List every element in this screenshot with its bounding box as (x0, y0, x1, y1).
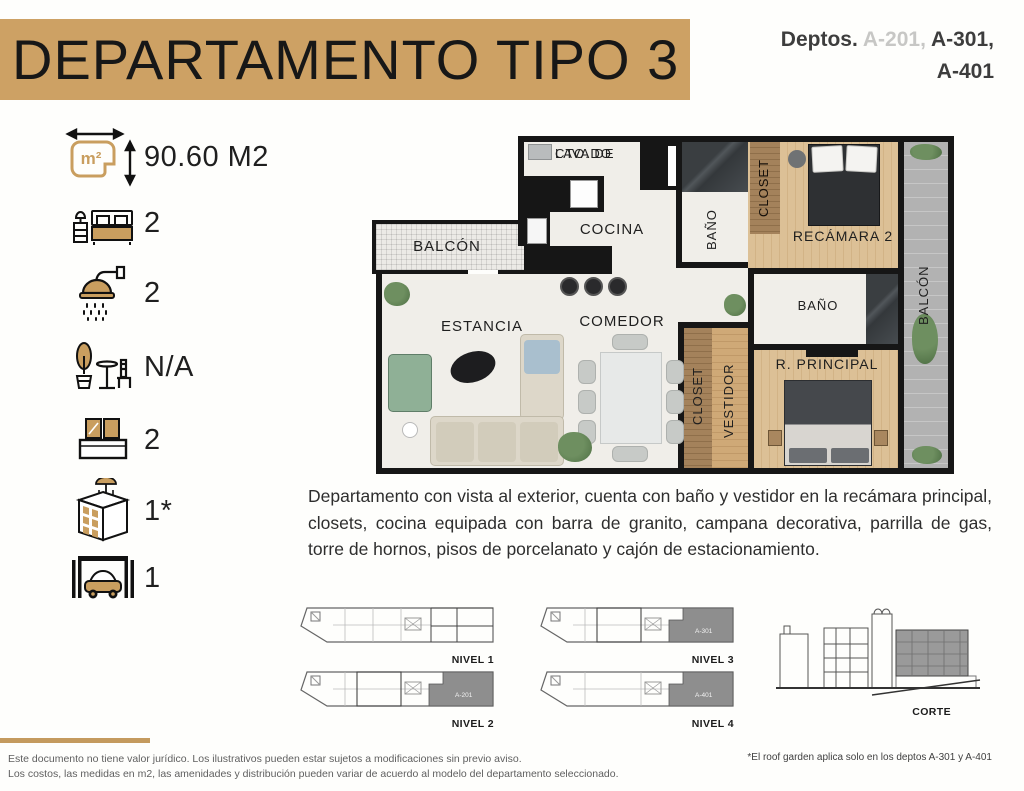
spec-row-bedrooms: 2 (62, 198, 161, 248)
room-label-dining: COMEDOR (570, 313, 674, 330)
room-label-bathroom2: BAÑO (778, 298, 858, 313)
stool (608, 277, 627, 296)
brochure-page: DEPARTAMENTO TIPO 3 Deptos. A-201, A-301… (0, 0, 1024, 791)
spec-row-area: m² 90.60 M2 (62, 124, 269, 190)
terrace-icon (62, 340, 144, 394)
roof-garden-icon (62, 478, 144, 544)
thumb-nivel-1: NIVEL 1 (293, 602, 500, 666)
spec-area-value: 90.60 M2 (144, 141, 269, 174)
wall (376, 274, 382, 472)
nivel2-unit: A-201 (455, 692, 473, 699)
wall (948, 136, 954, 474)
spec-row-bathrooms: 2 (62, 262, 161, 324)
room-label-living: ESTANCIA (430, 318, 534, 335)
kitchen-stove (527, 218, 547, 244)
spec-row-terrace: N/A (62, 338, 194, 396)
washer (528, 144, 552, 160)
area-icon: m² (62, 126, 144, 188)
spec-parking-value: 1 (144, 562, 161, 595)
master-pillow (831, 448, 869, 463)
spec-bathrooms-value: 2 (144, 277, 161, 310)
room-label-bathroom1: BAÑO (704, 200, 719, 260)
bathroom-icon (62, 264, 144, 322)
sofa-cushion (520, 422, 558, 462)
plant (558, 432, 592, 462)
wall (682, 262, 752, 268)
nightstand (874, 430, 888, 446)
spec-roof-garden-value: 1* (144, 495, 172, 528)
stool (560, 277, 579, 296)
room-label-kitchen: COCINA (562, 221, 662, 238)
dining-chair (666, 360, 684, 384)
nivel4-label: NIVEL 4 (533, 718, 740, 730)
dining-chair (612, 446, 648, 462)
dining-chair (666, 390, 684, 414)
spec-row-roof-garden: 1* (62, 474, 172, 548)
roof-garden-note: *El roof garden aplica solo en los depto… (747, 752, 992, 763)
bath1-shower (682, 142, 748, 192)
nivel3-plan: A-301 (533, 602, 740, 648)
thumb-nivel-3: A-301 NIVEL 3 (533, 602, 740, 666)
spec-row-balconies: 2 (62, 412, 161, 468)
bath2-shower (866, 274, 898, 344)
nivel1-plan (293, 602, 500, 648)
sofa-cushion (478, 422, 516, 462)
bedroom-icon (62, 199, 144, 247)
plant (384, 282, 410, 306)
blue-throw (524, 340, 560, 374)
plant (910, 144, 942, 160)
nivel3-unit: A-301 (695, 628, 713, 635)
side-table (402, 422, 418, 438)
spec-balconies-value: 2 (144, 424, 161, 457)
footer-accent-bar (0, 738, 150, 743)
title-banner: DEPARTAMENTO TIPO 3 (0, 19, 690, 100)
disclaimer: Este documento no tiene valor jurídico. … (8, 752, 619, 782)
bed2-pillow (845, 145, 877, 173)
parking-icon (62, 552, 144, 604)
dining-chair (578, 390, 596, 414)
wall (372, 220, 376, 274)
balcony-icon (62, 414, 144, 466)
depto-a301: A-301, (931, 28, 994, 51)
laundry-line2: LAVADO (555, 145, 612, 163)
wall (372, 220, 524, 224)
appliance-slot (668, 146, 676, 186)
depto-a201: A-201, (863, 28, 926, 51)
disclaimer-line1: Este documento no tiene valor jurídico. … (8, 752, 619, 767)
floor-plan: BALCÓN CTO. DE LAVADO COCINA BAÑO (372, 128, 966, 478)
dining-chair (612, 334, 648, 350)
page-title: DEPARTAMENTO TIPO 3 (0, 27, 679, 92)
thumb-nivel-2: A-201 NIVEL 2 (293, 666, 500, 730)
disclaimer-line2: Los costos, las medidas en m2, las ameni… (8, 767, 619, 782)
unit-numbers-line1: Deptos. A-201, A-301, (781, 24, 994, 56)
spec-bedrooms-value: 2 (144, 207, 161, 240)
nivel4-unit: A-401 (695, 692, 713, 699)
dining-chair (666, 420, 684, 444)
svg-text:m²: m² (81, 149, 102, 168)
nivel2-plan: A-201 (293, 666, 500, 712)
deptos-prefix: Deptos. (781, 28, 858, 51)
room-label-balcony-left: BALCÓN (392, 238, 502, 255)
kitchen-oven (570, 180, 598, 208)
nightstand (768, 430, 782, 446)
nivel1-label: NIVEL 1 (293, 654, 500, 666)
wall (372, 270, 468, 274)
room-label-dressing: VESTIDOR (721, 346, 736, 456)
thumb-nivel-4: A-401 NIVEL 4 (533, 666, 740, 730)
kitchen-bar (524, 246, 612, 274)
wall (498, 270, 524, 274)
master-pillow (789, 448, 827, 463)
plant (724, 294, 746, 316)
nivel4-plan: A-401 (533, 666, 740, 712)
room-label-closet2: CLOSET (690, 346, 705, 446)
unit-numbers-line2: A-401 (781, 56, 994, 88)
green-armchair (388, 354, 432, 412)
spec-terrace-value: N/A (144, 351, 194, 384)
description-text: Departamento con vista al exterior, cuen… (308, 483, 992, 563)
bed2-pillow (811, 145, 843, 173)
corte-label: CORTE (772, 706, 987, 718)
dining-chair (578, 360, 596, 384)
thumb-corte: CORTE (772, 600, 987, 718)
room-label-bedroom2: RECÁMARA 2 (788, 228, 898, 244)
nivel3-label: NIVEL 3 (533, 654, 740, 666)
wall (376, 468, 954, 474)
unit-numbers: Deptos. A-201, A-301, A-401 (781, 24, 994, 88)
room-label-master: R. PRINCIPAL (762, 356, 892, 372)
room-label-closet1: CLOSET (756, 150, 771, 226)
dining-table (600, 352, 662, 444)
room-label-balcony-right: BALCÓN (916, 260, 931, 330)
nivel2-label: NIVEL 2 (293, 718, 500, 730)
plant (912, 446, 942, 464)
bed2-rug (788, 150, 806, 168)
corte-section (772, 600, 987, 700)
stool (584, 277, 603, 296)
sofa-cushion (436, 422, 474, 462)
spec-row-parking: 1 (62, 550, 161, 606)
